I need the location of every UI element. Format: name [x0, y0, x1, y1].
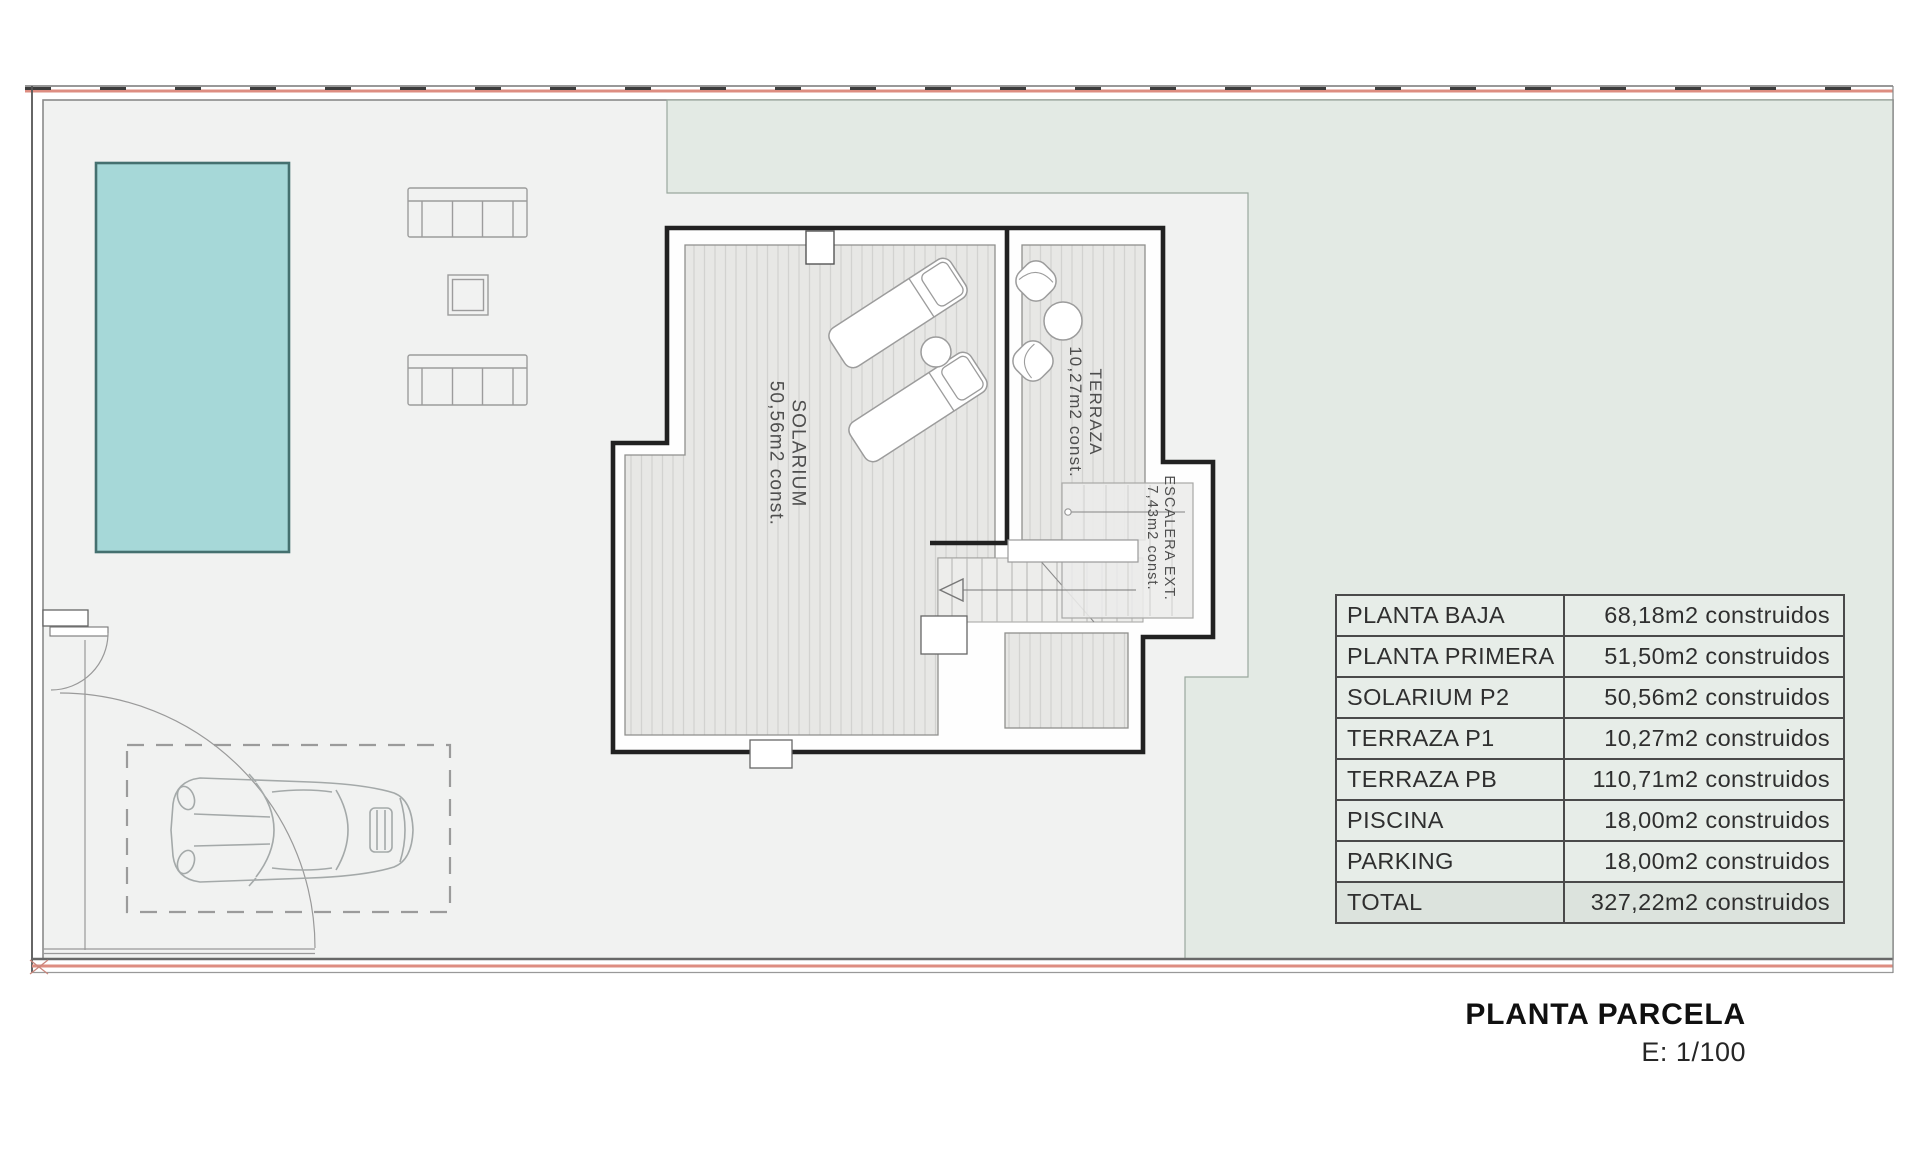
chimney [806, 231, 834, 264]
table-row: PARKING 18,00m2 construidos [1337, 842, 1843, 883]
area-row-label: TERRAZA P1 [1337, 719, 1565, 758]
wall-opening [750, 740, 792, 768]
area-row-label: PLANTA PRIMERA [1337, 637, 1565, 676]
solarium-name: SOLARIUM [786, 333, 808, 573]
solarium-area: 50,56m2 const. [764, 333, 786, 573]
pedestrian-door-leaf [50, 627, 108, 636]
area-row-value: 18,00m2 construidos [1565, 848, 1843, 875]
terrace-area: 10,27m2 const. [1065, 302, 1085, 522]
table-row: TERRAZA P1 10,27m2 construidos [1337, 719, 1843, 760]
area-row-value: 50,56m2 construidos [1565, 684, 1843, 711]
terrace-name: TERRAZA [1085, 302, 1105, 522]
drawing-scale: E: 1/100 [1465, 1037, 1746, 1068]
title-block: PLANTA PARCELA E: 1/100 [1465, 998, 1746, 1068]
table-row: PISCINA 18,00m2 construidos [1337, 801, 1843, 842]
terrace-label: TERRAZA 10,27m2 const. [1065, 302, 1105, 522]
staircase-label: ESCALERA EXT. 7,43m2 const. [1143, 440, 1177, 636]
page-title: PLANTA PARCELA [1465, 998, 1746, 1032]
area-row-value: 51,50m2 construidos [1565, 643, 1843, 670]
area-row-label: PISCINA [1337, 801, 1565, 840]
lower-deck [1005, 633, 1128, 728]
table-row: SOLARIUM P2 50,56m2 construidos [1337, 678, 1843, 719]
area-row-label: SOLARIUM P2 [1337, 678, 1565, 717]
solarium-label: SOLARIUM 50,56m2 const. [764, 333, 809, 573]
staircase-area: 7,43m2 const. [1143, 440, 1160, 636]
area-row-value: 327,22m2 construidos [1565, 889, 1843, 916]
table-row: PLANTA PRIMERA 51,50m2 construidos [1337, 637, 1843, 678]
area-row-value: 68,18m2 construidos [1565, 602, 1843, 629]
area-row-value: 110,71m2 construidos [1565, 766, 1843, 793]
site-plan-drawing [0, 0, 1920, 1166]
area-row-label: PARKING [1337, 842, 1565, 881]
table-row: TERRAZA PB 110,71m2 construidos [1337, 760, 1843, 801]
side-table [921, 337, 951, 367]
area-row-label: TOTAL [1337, 883, 1565, 922]
table-row-total: TOTAL 327,22m2 construidos [1337, 883, 1843, 922]
gate-pillar [43, 610, 88, 626]
stair-landing [1008, 540, 1138, 562]
table-row: PLANTA BAJA 68,18m2 construidos [1337, 596, 1843, 637]
areas-table: PLANTA BAJA 68,18m2 construidos PLANTA P… [1335, 594, 1845, 924]
area-row-label: TERRAZA PB [1337, 760, 1565, 799]
area-row-value: 18,00m2 construidos [1565, 807, 1843, 834]
floor-plan-page: SOLARIUM 50,56m2 const. TERRAZA 10,27m2 … [0, 0, 1920, 1166]
staircase-name: ESCALERA EXT. [1160, 440, 1177, 636]
pool [96, 163, 289, 552]
door [921, 616, 967, 654]
area-row-value: 10,27m2 construidos [1565, 725, 1843, 752]
area-row-label: PLANTA BAJA [1337, 596, 1565, 635]
